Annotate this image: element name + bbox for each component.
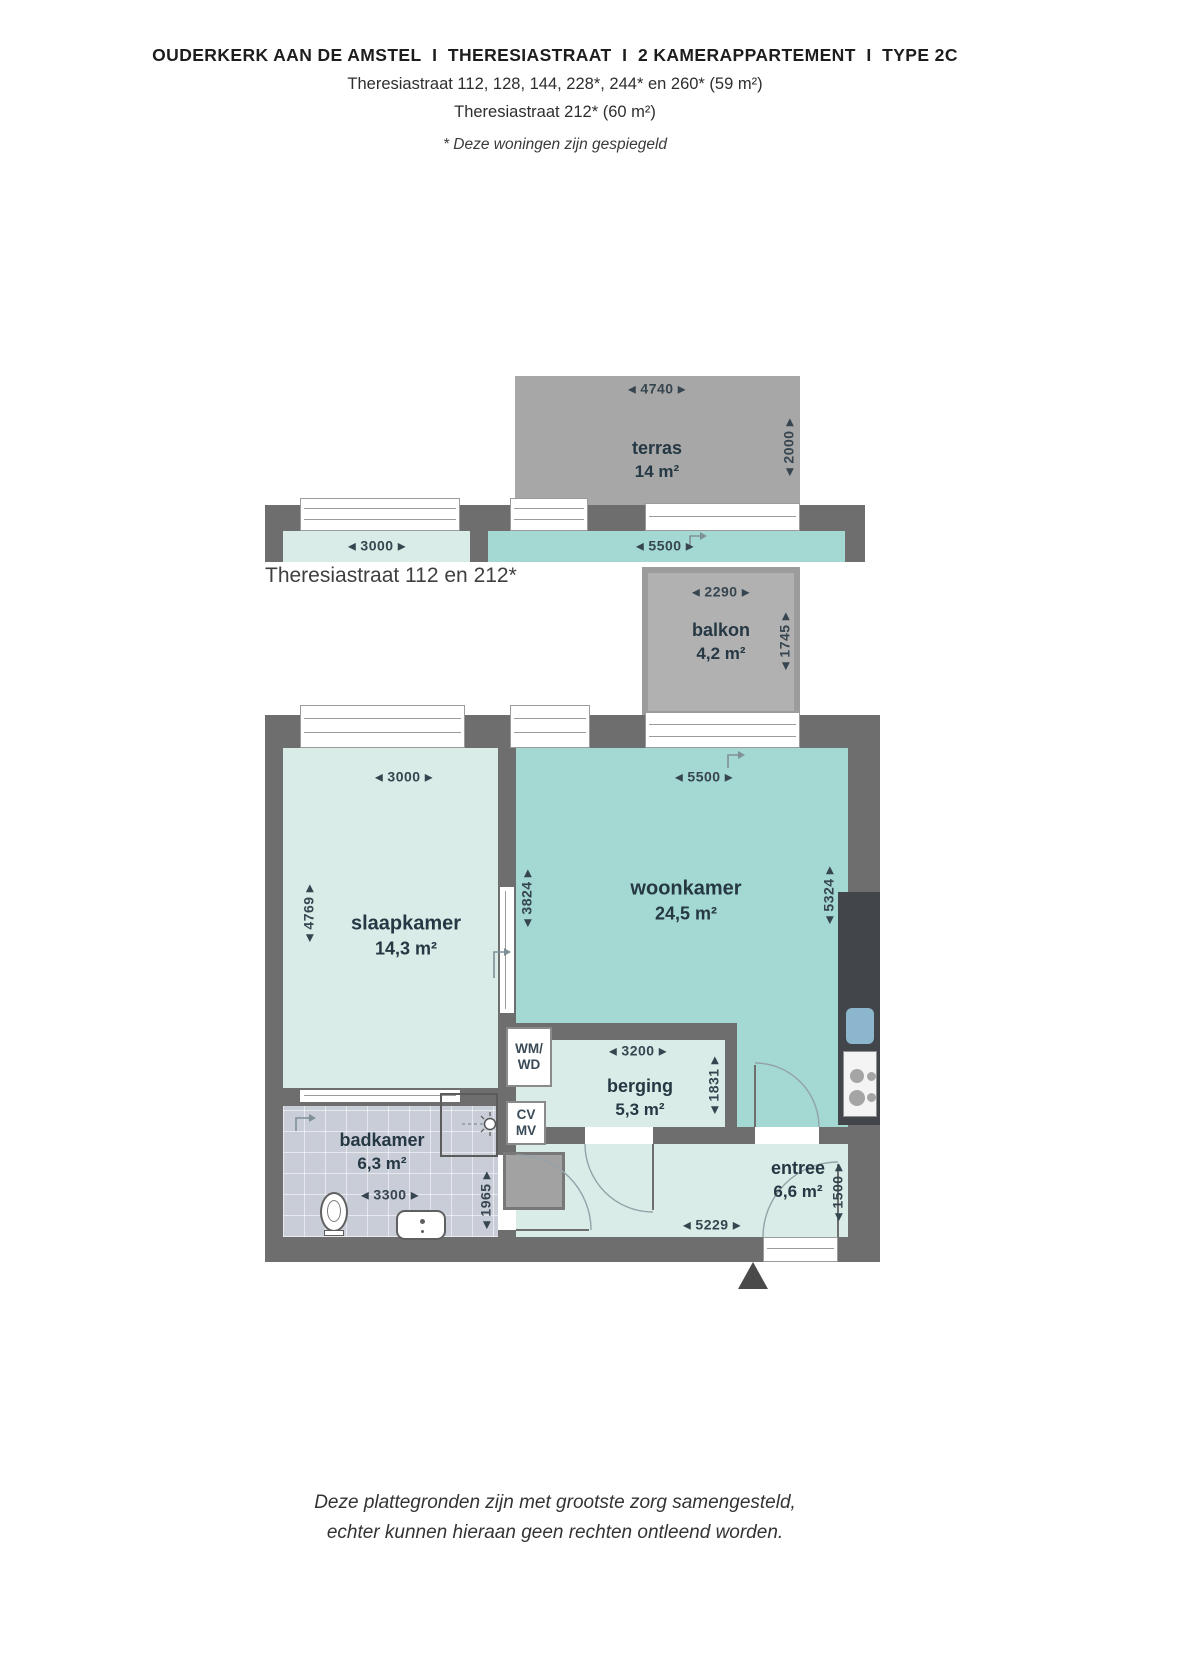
sliding-door-badkamer	[300, 1090, 460, 1102]
door-leaf-line	[304, 1095, 456, 1096]
cv-mv-box: CV MV	[506, 1101, 546, 1145]
room-label-terras: terras 14 m²	[632, 438, 682, 482]
window-frame-line	[514, 519, 584, 520]
door-frame-line	[649, 736, 796, 737]
toilet	[320, 1192, 348, 1232]
window-frame-line	[304, 732, 461, 733]
wall-left	[265, 715, 283, 1262]
washbasin	[396, 1210, 446, 1240]
dim-balkon-depth: ◂ 1745 ▸	[777, 613, 794, 670]
kitchen-stove	[843, 1051, 877, 1117]
door-leaf-line	[505, 891, 506, 1009]
balkon-sliding-door	[645, 712, 800, 748]
entrance-arrow-marker	[738, 1262, 768, 1289]
disclaimer-line-1: Deze plattegronden zijn met grootste zor…	[0, 1488, 1110, 1518]
strip-window-right	[510, 498, 588, 531]
floorplan-page: OUDERKERK AAN DE AMSTEL I THERESIASTRAAT…	[0, 0, 1188, 1680]
mirrored-note: * Deze woningen zijn gespiegeld	[0, 136, 1110, 154]
stove-burner	[850, 1069, 864, 1083]
dim-strip-left: ◂ 3000 ▸	[349, 538, 406, 555]
window-frame-line	[304, 718, 461, 719]
dim-berging-right: ◂ 1831 ▸	[706, 1057, 723, 1114]
room-label-slaapkamer: slaapkamer 14,3 m²	[351, 913, 461, 960]
woonkamer-window	[510, 705, 590, 748]
room-name: balkon	[692, 620, 750, 641]
door-opening-berging	[585, 1127, 653, 1144]
window-frame-line	[304, 508, 456, 509]
door-frame-line	[649, 516, 796, 517]
window-frame-line	[304, 519, 456, 520]
door-opening-woonkamer	[755, 1127, 819, 1144]
room-area: 6,3 m²	[339, 1154, 424, 1174]
room-area: 14,3 m²	[351, 939, 461, 960]
dim-slaapkamer-left: ◂ 4769 ▸	[301, 885, 318, 942]
kitchen-sink	[846, 1008, 874, 1044]
dim-slaapkamer-top: ◂ 3000 ▸	[376, 769, 433, 786]
room-name: berging	[607, 1076, 673, 1097]
drain-dot	[421, 1230, 424, 1233]
dim-woonkamer-right: ◂ 5324 ▸	[821, 867, 838, 924]
section-label: Theresiastraat 112 en 212*	[265, 564, 517, 588]
room-name: badkamer	[339, 1130, 424, 1151]
disclaimer: Deze plattegronden zijn met grootste zor…	[0, 1488, 1110, 1548]
dim-terras-width: ◂ 4740 ▸	[629, 381, 686, 398]
washer-dryer-label-2: WD	[518, 1057, 541, 1073]
door-frame-line	[649, 724, 796, 725]
dim-balkon-width: ◂ 2290 ▸	[693, 584, 750, 601]
room-area: 14 m²	[632, 462, 682, 482]
room-area: 5,3 m²	[607, 1100, 673, 1120]
room-label-badkamer: badkamer 6,3 m²	[339, 1130, 424, 1174]
washer-dryer-box: WM/ WD	[506, 1027, 552, 1087]
dim-entree-bottom: ◂ 5229 ▸	[684, 1217, 741, 1234]
strip-middle-pier	[470, 505, 488, 562]
toilet-cistern	[324, 1230, 344, 1236]
window-frame-line	[514, 508, 584, 509]
dim-badkamer-bottom: ◂ 3300 ▸	[362, 1187, 419, 1204]
door-frame-line	[767, 1248, 834, 1249]
stove-burner	[849, 1090, 865, 1106]
room-area: 24,5 m²	[630, 904, 741, 925]
woonkamer-floor-kitchen-side	[737, 1023, 848, 1127]
strip-left-wall-stub	[265, 505, 283, 562]
shower-area	[440, 1093, 498, 1157]
terras-sliding-door	[645, 503, 800, 531]
dim-strip-right: ◂ 5500 ▸	[637, 538, 694, 555]
dim-badkamer-right: ◂ 1965 ▸	[478, 1172, 495, 1229]
room-name: terras	[632, 438, 682, 459]
room-name: slaapkamer	[351, 913, 461, 936]
cv-mv-label-1: CV	[517, 1107, 536, 1123]
room-area: 4,2 m²	[692, 644, 750, 664]
address-line-2: Theresiastraat 212* (60 m²)	[0, 103, 1110, 122]
dim-woonkamer-top: ◂ 5500 ▸	[676, 769, 733, 786]
washer-dryer-label-1: WM/	[515, 1041, 543, 1057]
room-label-woonkamer: woonkamer 24,5 m²	[630, 878, 741, 925]
faucet-dot	[420, 1219, 425, 1224]
dim-terras-depth: ◂ 2000 ▸	[781, 419, 798, 476]
toilet-bowl	[327, 1200, 341, 1222]
stove-burner	[867, 1072, 876, 1081]
front-door-opening	[763, 1237, 838, 1262]
room-area: 6,6 m²	[771, 1182, 825, 1202]
address-line-1: Theresiastraat 112, 128, 144, 228*, 244*…	[0, 75, 1110, 94]
room-label-berging: berging 5,3 m²	[607, 1076, 673, 1120]
shaft-box	[503, 1152, 565, 1210]
strip-right-wall-stub	[845, 505, 865, 562]
room-label-balkon: balkon 4,2 m²	[692, 620, 750, 664]
wall-berging-right	[725, 1023, 737, 1144]
room-name: entree	[771, 1158, 825, 1179]
dim-slaapkamer-right: ◂ 3824 ▸	[519, 870, 536, 927]
slaapkamer-window	[300, 705, 465, 748]
room-label-entree: entree 6,6 m²	[771, 1158, 825, 1202]
dim-berging-top: ◂ 3200 ▸	[610, 1043, 667, 1060]
strip-window-left	[300, 498, 460, 531]
page-title: OUDERKERK AAN DE AMSTEL I THERESIASTRAAT…	[0, 45, 1110, 66]
dim-entree-right: ◂ 1500 ▸	[830, 1164, 847, 1221]
cv-mv-label-2: MV	[516, 1123, 536, 1139]
disclaimer-line-2: echter kunnen hieraan geen rechten ontle…	[0, 1518, 1110, 1548]
sliding-door-slaapkamer	[500, 887, 514, 1013]
window-frame-line	[514, 732, 586, 733]
window-frame-line	[514, 718, 586, 719]
room-name: woonkamer	[630, 878, 741, 901]
page-header: OUDERKERK AAN DE AMSTEL I THERESIASTRAAT…	[0, 45, 1110, 154]
stove-burner	[867, 1093, 876, 1102]
